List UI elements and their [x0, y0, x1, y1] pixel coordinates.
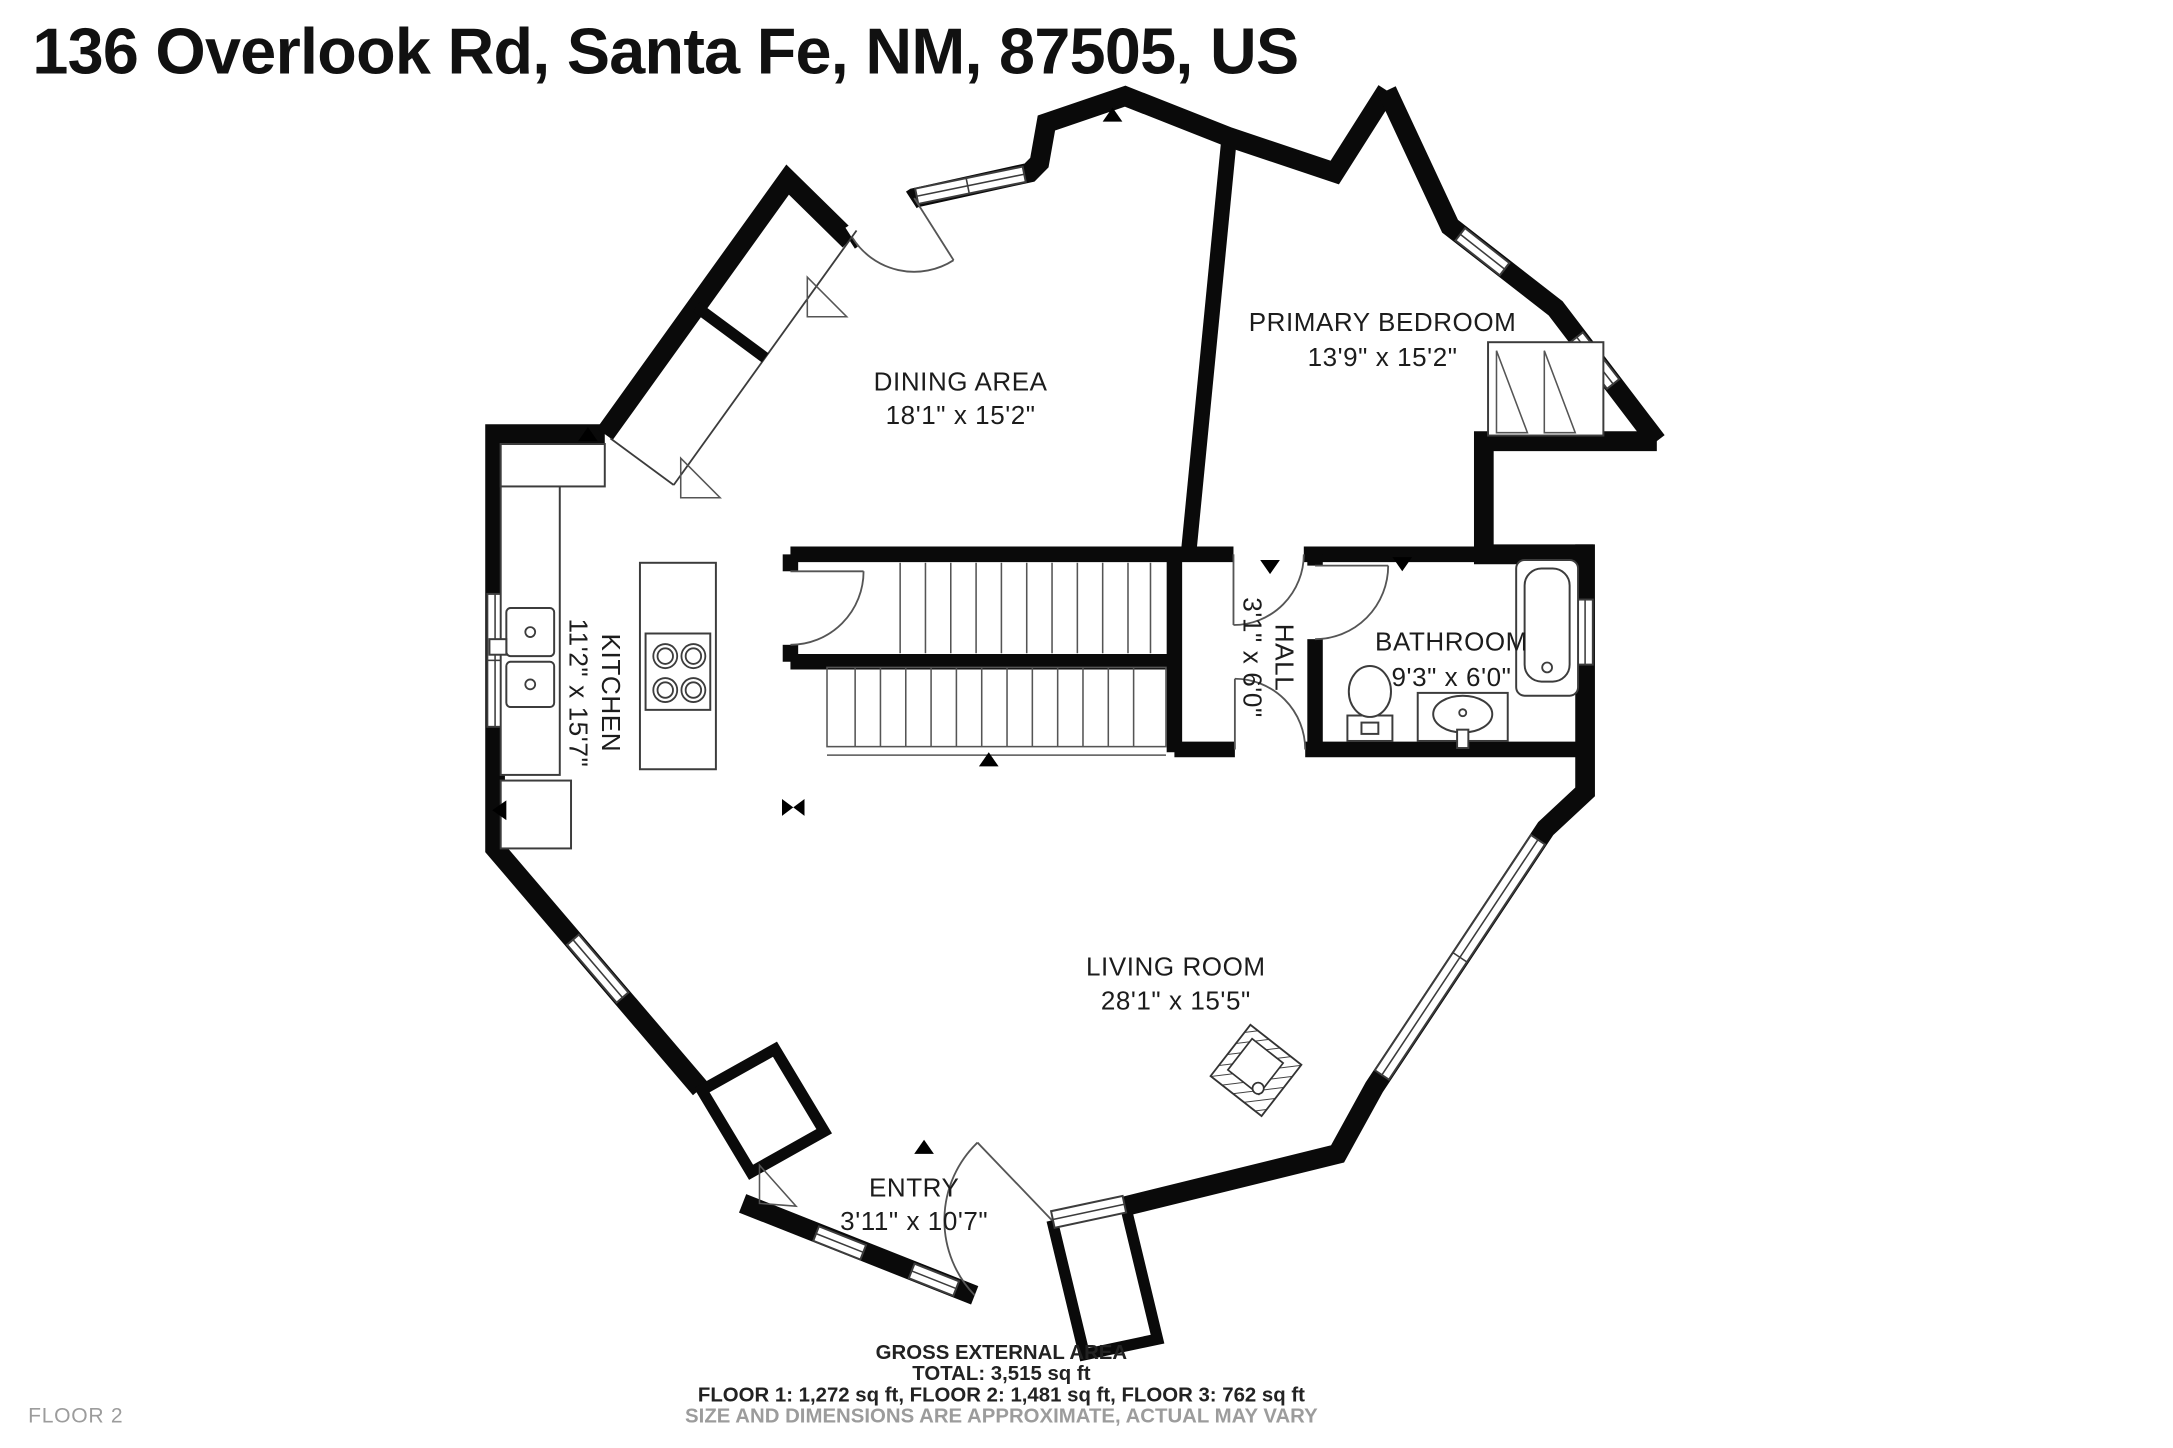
window-bathroom	[1577, 600, 1592, 665]
svg-text:11'2" x 15'7": 11'2" x 15'7"	[564, 618, 594, 767]
entry-label: ENTRY 3'11" x 10'7"	[840, 1172, 988, 1236]
floorplan-canvas: DINING AREA 18'1" x 15'2" PRIMARY BEDROO…	[0, 0, 2173, 1448]
window-kitchen-lower	[567, 935, 628, 1003]
svg-text:18'1" x 15'2": 18'1" x 15'2"	[886, 400, 1036, 430]
bathroom-label: BATHROOM 9'3" x 6'0"	[1375, 626, 1528, 691]
svg-text:BATHROOM: BATHROOM	[1375, 626, 1528, 656]
fridge	[501, 781, 571, 849]
svg-text:HALL: HALL	[1270, 624, 1300, 692]
window-bedroom-1	[1455, 228, 1509, 275]
footer-total: TOTAL: 3,515 sq ft	[912, 1362, 1090, 1385]
svg-text:3'1" x 6'0": 3'1" x 6'0"	[1237, 597, 1267, 718]
porch-threshold-window	[1051, 1196, 1126, 1228]
svg-text:28'1" x 15'5": 28'1" x 15'5"	[1101, 986, 1251, 1016]
window-dining	[915, 167, 1026, 204]
svg-text:LIVING ROOM: LIVING ROOM	[1086, 952, 1266, 982]
svg-text:PRIMARY BEDROOM: PRIMARY BEDROOM	[1249, 307, 1517, 337]
window-living-long	[1375, 835, 1545, 1080]
footer-floors: FLOOR 1: 1,272 sq ft, FLOOR 2: 1,481 sq …	[698, 1383, 1305, 1406]
bowtie-marker	[782, 799, 805, 816]
svg-text:13'9" x 15'2": 13'9" x 15'2"	[1308, 342, 1458, 372]
svg-text:3'11" x 10'7": 3'11" x 10'7"	[840, 1206, 988, 1236]
primary-bedroom-label: PRIMARY BEDROOM 13'9" x 15'2"	[1249, 307, 1517, 372]
fireplace	[1211, 1025, 1302, 1116]
dining-area-label: DINING AREA 18'1" x 15'2"	[874, 366, 1048, 430]
entry-closet	[702, 1049, 824, 1206]
toilet	[1347, 666, 1392, 741]
kitchen-island	[640, 563, 716, 769]
floor-number-label: FLOOR 2	[28, 1404, 123, 1427]
svg-text:DINING AREA: DINING AREA	[874, 366, 1048, 396]
entry-porch	[1051, 1196, 1157, 1355]
wardrobe	[1488, 342, 1603, 435]
svg-text:KITCHEN: KITCHEN	[596, 634, 626, 753]
footer-disclaimer: SIZE AND DIMENSIONS ARE APPROXIMATE, ACT…	[685, 1404, 1318, 1427]
bathroom-sink	[1418, 693, 1508, 748]
svg-text:ENTRY: ENTRY	[869, 1172, 959, 1202]
footer: GROSS EXTERNAL AREA TOTAL: 3,515 sq ft F…	[685, 1341, 1318, 1428]
footer-gross-area: GROSS EXTERNAL AREA	[876, 1341, 1128, 1364]
page-title: 136 Overlook Rd, Santa Fe, NM, 87505, US	[32, 14, 1298, 87]
interior-walls	[790, 137, 1590, 752]
kitchen-label: KITCHEN 11'2" x 15'7"	[564, 618, 626, 767]
svg-text:9'3" x 6'0": 9'3" x 6'0"	[1392, 662, 1512, 692]
living-room-label: LIVING ROOM 28'1" x 15'5"	[1086, 952, 1266, 1016]
